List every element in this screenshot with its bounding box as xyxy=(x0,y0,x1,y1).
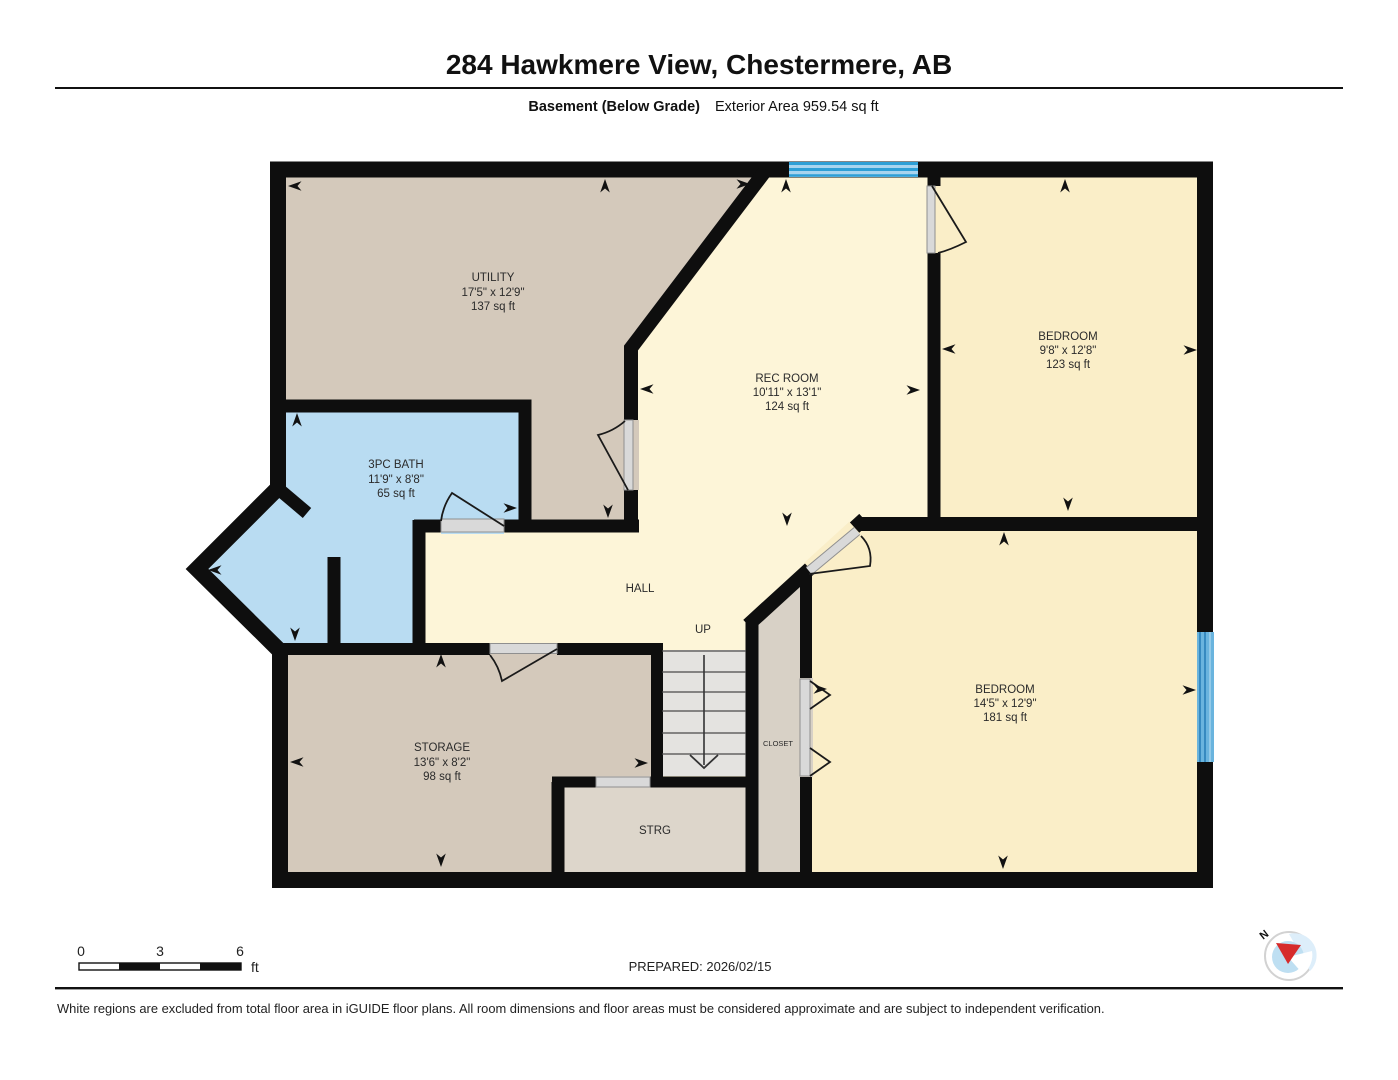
svg-text:UP: UP xyxy=(695,624,711,636)
svg-text:N: N xyxy=(1258,928,1272,942)
svg-text:REC ROOM: REC ROOM xyxy=(755,373,818,385)
svg-text:284 Hawkmere View, Chestermere: 284 Hawkmere View, Chestermere, AB xyxy=(446,49,952,80)
svg-text:10'11" x 13'1": 10'11" x 13'1" xyxy=(753,387,822,399)
svg-text:BEDROOM: BEDROOM xyxy=(975,684,1034,696)
svg-text:13'6" x 8'2": 13'6" x 8'2" xyxy=(414,757,471,769)
svg-text:137 sq ft: 137 sq ft xyxy=(471,301,516,313)
svg-text:9'8" x 12'8": 9'8" x 12'8" xyxy=(1040,345,1097,357)
svg-text:123 sq ft: 123 sq ft xyxy=(1046,359,1091,371)
svg-text:181 sq ft: 181 sq ft xyxy=(983,712,1028,724)
svg-text:Exterior Area 959.54 sq ft: Exterior Area 959.54 sq ft xyxy=(715,99,879,115)
svg-text:17'5" x 12'9": 17'5" x 12'9" xyxy=(461,287,524,299)
svg-text:UTILITY: UTILITY xyxy=(472,272,515,284)
svg-text:11'9" x 8'8": 11'9" x 8'8" xyxy=(368,474,424,486)
svg-text:3PC BATH: 3PC BATH xyxy=(368,459,423,471)
svg-text:HALL: HALL xyxy=(626,583,655,595)
svg-text:65 sq ft: 65 sq ft xyxy=(377,488,416,500)
svg-text:STORAGE: STORAGE xyxy=(414,742,470,754)
svg-text:14'5" x 12'9": 14'5" x 12'9" xyxy=(973,698,1036,710)
svg-text:124 sq ft: 124 sq ft xyxy=(765,401,810,413)
svg-text:0: 0 xyxy=(77,943,85,959)
svg-text:BEDROOM: BEDROOM xyxy=(1038,331,1097,343)
svg-text:STRG: STRG xyxy=(639,825,671,837)
svg-text:98 sq ft: 98 sq ft xyxy=(423,771,462,783)
svg-text:Basement (Below Grade): Basement (Below Grade) xyxy=(528,99,700,115)
svg-text:6: 6 xyxy=(236,943,244,959)
svg-text:ft: ft xyxy=(251,959,259,975)
svg-text:3: 3 xyxy=(156,943,164,959)
svg-text:PREPARED: 2026/02/15: PREPARED: 2026/02/15 xyxy=(629,959,772,974)
svg-text:CLOSET: CLOSET xyxy=(763,739,793,748)
svg-text:White regions are excluded fro: White regions are excluded from total fl… xyxy=(57,1001,1105,1016)
